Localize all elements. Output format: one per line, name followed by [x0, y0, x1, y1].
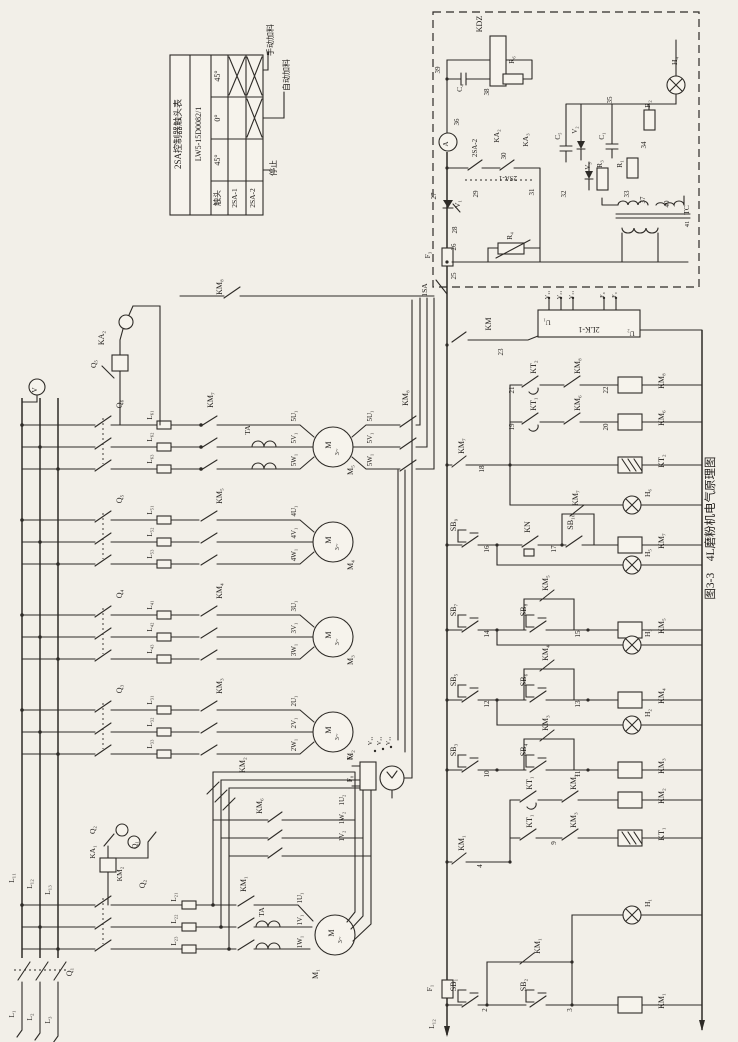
- schematic-label: F₃: [423, 251, 432, 258]
- schematic-label: 1SA: [420, 283, 429, 297]
- ka2-coil: [112, 355, 128, 371]
- schematic-label: KM₄: [215, 583, 224, 599]
- schematic-label: KM₇: [571, 490, 580, 506]
- schematic-label: 手动加料: [265, 24, 275, 56]
- schematic-label: H₅: [643, 549, 652, 557]
- power-section: [14, 287, 434, 1042]
- schematic-label: KT₁: [525, 814, 534, 828]
- schematic-label: L₁₂: [427, 1019, 436, 1029]
- ka2-relay-circuit: [102, 306, 160, 425]
- schematic-label: 5U₁: [290, 411, 298, 422]
- schematic-label: F₈: [600, 292, 606, 297]
- schematic-label: 3~: [337, 936, 344, 943]
- schematic-label: 1W₁: [296, 936, 304, 949]
- schematic-label: KDZ: [475, 16, 484, 33]
- schematic-label: KM₇: [657, 533, 666, 549]
- schematic-label: 3U₁: [290, 601, 298, 612]
- schematic-label: 9: [550, 841, 558, 845]
- schematic-label: 18: [478, 465, 486, 473]
- r1-resistor: [627, 158, 638, 178]
- schematic-label: Q₂: [88, 826, 97, 834]
- schematic-label: U₁: [543, 318, 551, 326]
- schematic-label: 3W₁: [290, 644, 298, 657]
- schematic-label: 29: [472, 190, 480, 198]
- schematic-label: 1U₁: [296, 893, 304, 904]
- schematic-label: F₁: [425, 984, 434, 991]
- schematic-label: SB₇: [449, 604, 458, 617]
- table-mode-connectors: [263, 52, 284, 170]
- schematic-label: 2SA控制器触头表: [172, 99, 183, 169]
- schematic-label: 27: [430, 192, 438, 200]
- km2-coil: [618, 792, 642, 808]
- schematic-label: C₄: [455, 84, 464, 92]
- schematic-label: Q₄: [115, 590, 124, 599]
- schematic-label: M: [327, 929, 336, 936]
- ta-current-transformer: [252, 441, 276, 469]
- schematic-label: TA: [257, 907, 266, 917]
- schematic-label: 停止: [268, 160, 278, 176]
- schematic-label: M₃: [346, 655, 355, 665]
- schematic-label: L₃: [43, 1016, 52, 1024]
- tc-transformer: [602, 196, 690, 262]
- km8-coil: [618, 377, 642, 393]
- schematic-label: KT₂: [529, 360, 538, 374]
- schematic-label: 36: [453, 118, 461, 126]
- schematic-label: 2U₁: [290, 696, 298, 707]
- schematic-label: V₃: [584, 162, 592, 170]
- schematic-label: KA₁: [88, 845, 97, 859]
- schematic-label: KM₇: [457, 438, 466, 454]
- schematic-label: 14: [483, 630, 491, 638]
- fuse: [157, 465, 171, 473]
- schematic-label: V₂₁: [377, 737, 383, 746]
- schematic-label: H₁: [643, 899, 652, 907]
- scanned-schematic-page: 2SA控制器触头表LW5-15D0082/145°0°45°触头2SA-12SA…: [0, 0, 738, 1042]
- km7-coil: [618, 537, 642, 553]
- schematic-label: KM₃: [569, 812, 578, 828]
- schematic-label: Q₃: [115, 685, 124, 694]
- schematic-label: LW5-15D0082/1: [194, 107, 203, 162]
- schematic-label: L₂: [25, 1013, 34, 1021]
- schematic-label: KA₃: [521, 133, 530, 147]
- schematic-label: KM₈: [401, 390, 410, 406]
- schematic-label: KM₈: [215, 279, 224, 295]
- plug-socket: [352, 300, 412, 798]
- schematic-label: 10: [483, 770, 491, 778]
- schematic-label: L₂₁: [170, 892, 178, 901]
- schematic-label: V₃₁: [386, 737, 392, 746]
- schematic-label: M₄: [346, 560, 355, 570]
- branch-m5: [22, 287, 434, 473]
- schematic-label: 0°: [213, 114, 222, 121]
- v2-diode: [577, 141, 585, 149]
- v1-thyristor: [443, 200, 453, 208]
- schematic-label: U₂: [627, 329, 635, 337]
- schematic-label: 45°: [213, 154, 222, 165]
- schematic-label: L₄₂: [146, 622, 154, 632]
- schematic-label: Q₁: [130, 841, 139, 849]
- schematic-label: 5W₁: [290, 454, 298, 467]
- schematic-label: V: [30, 387, 39, 393]
- schematic-label: SB₈: [519, 604, 528, 617]
- schematic-label: 22: [602, 386, 610, 394]
- schematic-label: 39: [434, 66, 442, 74]
- branch-m1: [22, 772, 371, 955]
- schematic-label: KA₂: [492, 129, 501, 143]
- schematic-label: 23: [497, 348, 505, 356]
- schematic-label: 触头: [212, 190, 222, 206]
- schematic-label: 2LK-1: [578, 325, 599, 334]
- schematic-label: SB₂: [519, 979, 528, 992]
- schematic-label: H₃: [643, 629, 652, 637]
- schematic-label: F₉: [612, 292, 618, 297]
- schematic-label: L₄₃: [146, 644, 154, 654]
- schematic-label: KN: [523, 521, 532, 533]
- schematic-label: C₅: [554, 132, 562, 140]
- schematic-label: KM₆: [573, 395, 582, 411]
- schematic-figure: 2SA控制器触头表LW5-15D0082/145°0°45°触头2SA-12SA…: [0, 0, 738, 1042]
- schematic-label: 5U₁: [366, 411, 374, 422]
- schematic-label: KM₂: [115, 866, 124, 881]
- schematic-label: TA: [243, 425, 252, 435]
- schematic-label: M₅: [346, 465, 355, 475]
- km6-coil: [618, 414, 642, 430]
- schematic-label: 19: [508, 423, 516, 431]
- schematic-label: KM₂: [657, 788, 666, 804]
- schematic-label: H₂: [643, 709, 652, 717]
- schematic-label: M: [324, 536, 333, 543]
- schematic-label: KM₁: [533, 938, 542, 954]
- schematic-label: SB₄: [519, 744, 528, 757]
- schematic-label: L₃₂: [146, 717, 154, 727]
- branch-m2: [22, 701, 353, 758]
- schematic-label: KM₃: [215, 678, 224, 694]
- ta-current-transformer: [256, 921, 280, 949]
- schematic-label: KT₁: [657, 827, 666, 841]
- schematic-label: V₁₁: [545, 291, 551, 300]
- schematic-label: KM₅: [541, 575, 550, 591]
- meter-icon: [119, 315, 133, 329]
- schematic-label: 21: [508, 386, 516, 394]
- schematic-label: 2SA-1: [498, 174, 517, 182]
- schematic-label: M: [324, 726, 333, 733]
- km5-coil: [618, 622, 642, 638]
- schematic-label: 4V₁: [290, 528, 298, 539]
- schematic-label: KM₅: [215, 488, 224, 504]
- schematic-label: 16: [483, 545, 491, 553]
- schematic-label: 5V₁: [366, 433, 374, 444]
- branch-m3: [22, 606, 353, 663]
- schematic-label: H₆: [643, 489, 652, 497]
- schematic-label: 17: [550, 545, 558, 553]
- schematic-label: L₆₃: [146, 454, 154, 464]
- schematic-label: 26: [450, 243, 458, 251]
- schematic-label: V₂: [571, 126, 579, 134]
- schematic-label: 自动加料: [281, 59, 291, 91]
- schematic-label: KT₁: [529, 397, 538, 411]
- schematic-label: R₃: [595, 160, 604, 168]
- km1-contacts: [238, 896, 254, 950]
- schematic-label: 12: [483, 700, 491, 708]
- schematic-label: L₅₁: [146, 505, 154, 514]
- schematic-label: 4U₁: [290, 506, 298, 517]
- schematic-label: V₃₁: [569, 291, 575, 300]
- schematic-label: Q₆: [115, 400, 124, 409]
- schematic-label: SB₆: [519, 674, 528, 687]
- motor-m3-symbol: [313, 617, 353, 657]
- schematic-label: 5W₁: [366, 454, 374, 467]
- schematic-label: 1V₁: [296, 915, 304, 926]
- schematic-label: L₁: [7, 1010, 16, 1018]
- schematic-label: 3: [566, 1008, 574, 1012]
- schematic-label: M: [324, 441, 333, 448]
- schematic-label: 3~: [334, 733, 341, 740]
- schematic-label: Q₅: [115, 495, 124, 504]
- schematic-label: 20: [602, 423, 610, 431]
- schematic-label: F₇: [346, 753, 354, 760]
- schematic-label: R₄: [505, 232, 514, 240]
- kn-contact: [524, 549, 534, 556]
- schematic-label: R₆: [507, 56, 516, 64]
- schematic-label: 45°: [213, 70, 222, 81]
- schematic-label: KM₄: [657, 688, 666, 704]
- schematic-label: H₄: [670, 57, 679, 65]
- r3-resistor: [597, 168, 608, 190]
- schematic-label: Q₂: [138, 880, 147, 889]
- schematic-label: 2SA-1: [230, 188, 239, 208]
- km8-contacts: [400, 416, 416, 471]
- schematic-label: KT₂: [657, 454, 666, 468]
- schematic-label: 2: [481, 1008, 489, 1012]
- schematic-label: KM₁: [457, 835, 466, 851]
- motor-m5-symbol: [313, 427, 353, 467]
- schematic-label: Q₁: [65, 968, 74, 977]
- schematic-label: KM₂: [238, 757, 247, 773]
- schematic-label: KM₁: [657, 993, 666, 1009]
- schematic-label: R₂: [643, 100, 652, 108]
- fuse: [157, 421, 171, 429]
- km1-coil: [618, 997, 642, 1013]
- schematic-label: L₁₁: [7, 873, 16, 883]
- ka1-relay-circuit: [100, 824, 156, 905]
- schematic-label: L₄₁: [146, 600, 154, 609]
- schematic-label: L₅₂: [146, 527, 154, 537]
- schematic-label: KM₃: [657, 758, 666, 774]
- schematic-label: 5V₁: [290, 433, 298, 444]
- schematic-label: M₁: [311, 969, 320, 979]
- schematic-label: 34: [640, 141, 648, 149]
- schematic-label: KM₆: [657, 410, 666, 426]
- schematic-label: 2W₁: [290, 739, 298, 752]
- schematic-label: 38: [483, 88, 491, 96]
- schematic-label: 3~: [334, 543, 341, 550]
- schematic-label: V₁₁: [368, 737, 374, 746]
- schematic-label: KM₂: [569, 774, 578, 790]
- schematic-label: A: [442, 141, 450, 146]
- schematic-label: 32: [560, 190, 568, 198]
- schematic-label: KM₄: [541, 645, 550, 661]
- meter-icon: [116, 824, 128, 836]
- branch-m4: [22, 511, 353, 568]
- km3-coil: [618, 762, 642, 778]
- schematic-label: SB₉: [449, 519, 458, 532]
- schematic-label: 图3-3 4L磨粉机电气原理图: [703, 456, 717, 599]
- schematic-label: C₁: [598, 132, 606, 139]
- schematic-label: 2SA-2: [248, 188, 257, 208]
- schematic-label: 30: [500, 152, 508, 160]
- motor-m2-symbol: [313, 712, 353, 752]
- schematic-label: KT₁: [525, 776, 534, 790]
- ka1-coil: [100, 858, 116, 872]
- schematic-label: KM₅: [657, 618, 666, 634]
- schematic-label: V₂₁: [557, 291, 563, 300]
- schematic-label: 4W₁: [290, 549, 298, 562]
- schematic-label: 25: [450, 272, 458, 280]
- schematic-label: KM₁: [239, 876, 248, 892]
- contact-table: [170, 52, 284, 215]
- v3-diode: [585, 171, 593, 179]
- r2-resistor: [644, 110, 655, 130]
- fuse: [157, 443, 171, 451]
- schematic-label: 3~: [334, 638, 341, 645]
- schematic-label: L₆₂: [146, 432, 154, 442]
- schematic-label: 28: [451, 226, 459, 234]
- schematic-label: 1W₂: [338, 811, 346, 824]
- schematic-label: TC: [682, 205, 691, 215]
- schematic-label: KM: [484, 318, 493, 331]
- c1-capacitor: [606, 136, 618, 158]
- schematic-label: 4: [476, 864, 484, 868]
- schematic-label: L₃₃: [146, 739, 154, 749]
- schematic-label: 40: [663, 200, 671, 208]
- schematic-label: M: [324, 631, 333, 638]
- schematic-label: KM₈: [657, 373, 666, 389]
- schematic-label: 2V₁: [290, 718, 298, 729]
- schematic-label: R₁: [615, 160, 624, 168]
- schematic-label: 2SA-2: [471, 138, 479, 157]
- schematic-label: L₅₃: [146, 549, 154, 559]
- schematic-label: KM₆: [255, 798, 264, 814]
- schematic-label: SB₁: [449, 979, 458, 992]
- schematic-label: L₃₁: [146, 695, 154, 704]
- schematic-label: 13: [574, 700, 582, 708]
- motor-m4-symbol: [313, 522, 353, 562]
- schematic-label: 1V₂: [338, 830, 346, 842]
- schematic-label: 41: [684, 221, 691, 228]
- schematic-label: 37: [639, 196, 647, 204]
- schematic-label: L₁₂: [25, 879, 34, 889]
- schematic-label: KM₈: [573, 358, 582, 374]
- schematic-label: Q₅: [89, 360, 98, 368]
- schematic-label: 15: [574, 630, 582, 638]
- r6-resistor: [503, 74, 523, 84]
- schematic-label: F₈: [346, 775, 354, 782]
- c5-capacitor: [560, 138, 572, 162]
- km4-coil: [618, 692, 642, 708]
- schematic-label: 3V₁: [290, 623, 298, 634]
- schematic-label: 33: [623, 190, 631, 198]
- schematic-label: 35: [606, 96, 614, 104]
- schematic-label: KM₃: [541, 715, 550, 731]
- schematic-label: L₁₃: [43, 885, 52, 895]
- schematic-label: 1U₂: [338, 794, 346, 806]
- schematic-label: L₆₁: [146, 410, 154, 419]
- schematic-label: SB₁₀: [566, 514, 575, 530]
- schematic-label: L₂₃: [170, 936, 178, 946]
- schematic-label: SB₃: [449, 744, 458, 757]
- schematic-label: SB₅: [449, 674, 458, 687]
- schematic-label: V₁: [453, 200, 462, 208]
- schematic-label: 31: [528, 188, 536, 196]
- km6-contacts: [268, 812, 282, 858]
- schematic-label: KM₇: [206, 392, 215, 408]
- km7-contacts: [201, 416, 217, 470]
- schematic-label: 3~: [334, 448, 341, 455]
- diagram-labels: 2SA控制器触头表LW5-15D0082/145°0°45°触头2SA-12SA…: [7, 16, 717, 1029]
- schematic-label: L₂₂: [170, 914, 178, 924]
- schematic-label: KA₂: [97, 331, 106, 346]
